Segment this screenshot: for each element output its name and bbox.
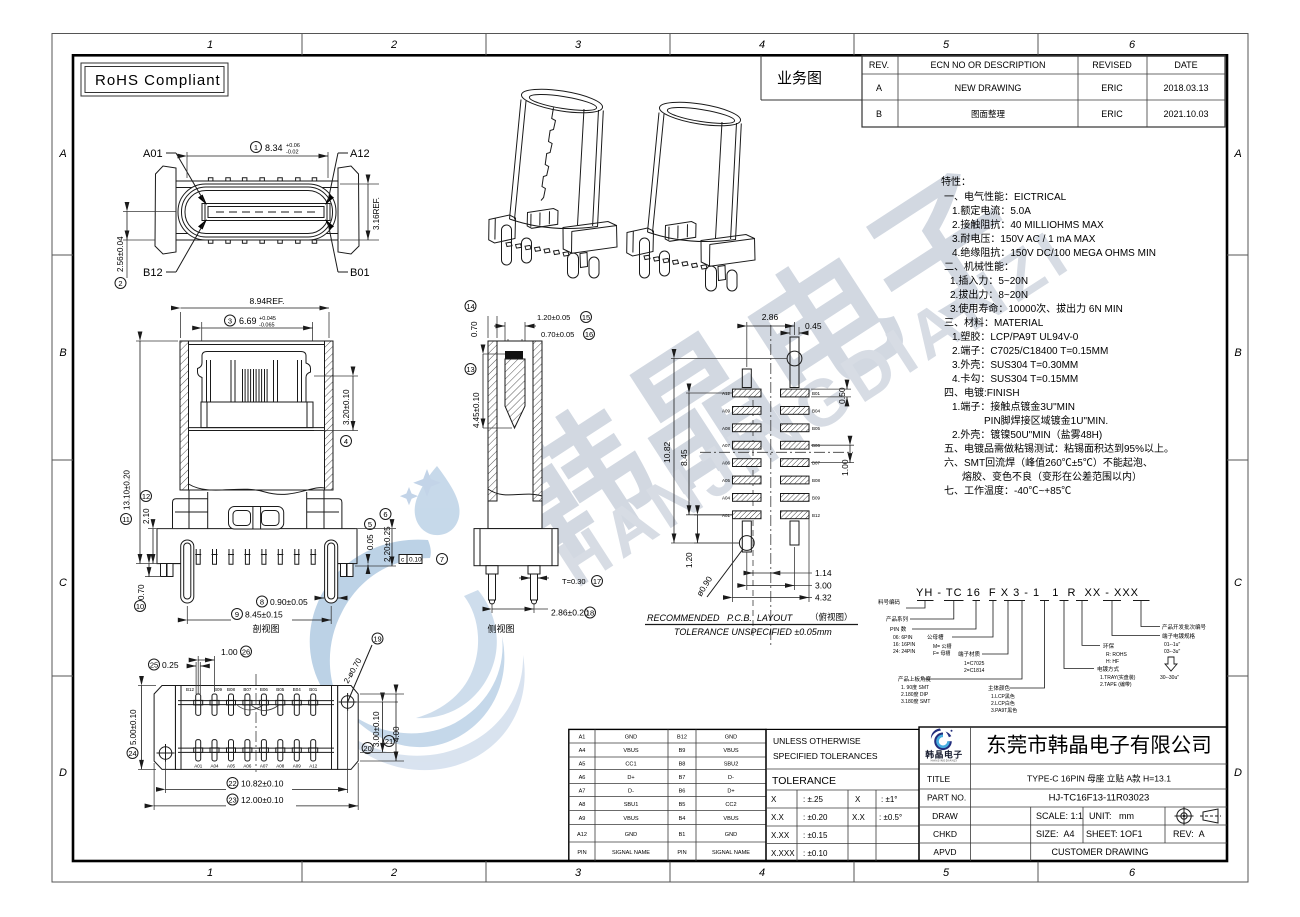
svg-text:X: X <box>855 795 861 804</box>
svg-text:6: 6 <box>383 510 387 519</box>
svg-text:2.56±0.04: 2.56±0.04 <box>116 236 125 272</box>
svg-text:20: 20 <box>363 744 371 753</box>
svg-text:A: A <box>876 83 882 93</box>
svg-text:18: 18 <box>586 609 594 618</box>
svg-text:12: 12 <box>142 492 150 501</box>
svg-text:2: 2 <box>118 279 122 288</box>
svg-text:1=C7025: 1=C7025 <box>964 661 985 667</box>
svg-text:电镀方式: 电镀方式 <box>1097 665 1120 673</box>
svg-text:B4: B4 <box>679 816 686 822</box>
svg-text:24: 24PIN: 24: 24PIN <box>893 649 916 655</box>
svg-text:4.32: 4.32 <box>815 593 832 603</box>
svg-text:4.卡勾：SUS304 T=0.15MM: 4.卡勾：SUS304 T=0.15MM <box>952 372 1078 385</box>
svg-text:A08: A08 <box>722 426 731 431</box>
svg-text:H: HF: H: HF <box>1106 659 1119 665</box>
svg-text:X.X: X.X <box>852 813 866 822</box>
svg-text:B05: B05 <box>812 426 821 431</box>
svg-text:2.TAPE (编带): 2.TAPE (编带) <box>1100 681 1132 688</box>
svg-text:CC2: CC2 <box>725 802 736 808</box>
svg-text:0.10: 0.10 <box>409 557 422 564</box>
svg-text:2.外壳：镀镍50U"MIN（盐雾48H): 2.外壳：镀镍50U"MIN（盐雾48H) <box>952 428 1102 441</box>
svg-text:A9: A9 <box>579 816 586 822</box>
svg-text:GND: GND <box>725 735 737 741</box>
svg-text:2018.03.13: 2018.03.13 <box>1163 83 1208 93</box>
svg-text:2.端子：C7025/C18400 T=0.15MM: 2.端子：C7025/C18400 T=0.15MM <box>952 344 1108 357</box>
svg-text:B1: B1 <box>679 832 686 838</box>
svg-text:四、电镀:FINISH: 四、电镀:FINISH <box>944 386 1020 399</box>
svg-text:0.45: 0.45 <box>805 321 822 331</box>
svg-text:SPECIFIED TOLERANCES: SPECIFIED TOLERANCES <box>773 751 878 761</box>
svg-text:SIZE: A4: SIZE: A4 <box>1036 829 1075 839</box>
svg-text:B: B <box>59 347 66 359</box>
svg-text:17: 17 <box>593 577 601 586</box>
svg-text:CC1: CC1 <box>625 762 636 768</box>
svg-text:3.外壳：SUS304 T=0.30MM: 3.外壳：SUS304 T=0.30MM <box>952 358 1078 371</box>
svg-text:: ±0.5°: : ±0.5° <box>879 813 902 822</box>
svg-text:0.70: 0.70 <box>470 321 479 337</box>
svg-text:B8: B8 <box>679 762 686 768</box>
svg-text:4: 4 <box>759 867 765 879</box>
svg-text:C: C <box>59 577 67 589</box>
svg-text:3: 3 <box>575 39 582 51</box>
svg-text:: ±.25: : ±.25 <box>803 795 824 804</box>
svg-text:B08: B08 <box>812 478 821 483</box>
svg-text:SHEET: 1OF1: SHEET: 1OF1 <box>1086 829 1143 839</box>
svg-text:A04: A04 <box>210 764 219 769</box>
svg-text:VBUS: VBUS <box>623 816 639 822</box>
svg-text:A6: A6 <box>579 775 586 781</box>
svg-text:2=C1814: 2=C1814 <box>964 668 985 674</box>
svg-text:公母槽: 公母槽 <box>927 633 944 641</box>
svg-text:PIN 数: PIN 数 <box>890 625 907 633</box>
svg-text:GND: GND <box>625 832 637 838</box>
svg-text:D+: D+ <box>627 775 634 781</box>
svg-text:B01: B01 <box>812 391 821 396</box>
svg-text:（俯视图）: （俯视图） <box>810 612 853 622</box>
svg-text:1: 1 <box>207 867 213 879</box>
svg-text:A12: A12 <box>722 391 731 396</box>
svg-text:01--1u": 01--1u" <box>1164 642 1180 648</box>
svg-text:5: 5 <box>368 520 372 529</box>
svg-text:A09: A09 <box>722 408 731 413</box>
svg-text:产品上板角度: 产品上板角度 <box>898 675 932 683</box>
svg-text:一、电气性能：EICTRICAL: 一、电气性能：EICTRICAL <box>944 190 1067 203</box>
svg-text:4.00: 4.00 <box>392 726 401 742</box>
svg-text:10.82±0.10: 10.82±0.10 <box>241 779 284 789</box>
svg-text:A: A <box>1233 148 1241 160</box>
svg-text:4.45±0.10: 4.45±0.10 <box>472 392 481 428</box>
svg-text:5: 5 <box>943 39 950 51</box>
svg-text:VBUS: VBUS <box>723 748 739 754</box>
svg-text:B04: B04 <box>293 687 302 692</box>
svg-text:A01: A01 <box>722 513 731 518</box>
svg-text:3: 3 <box>575 867 582 879</box>
svg-text:M= 公槽: M= 公槽 <box>933 643 951 650</box>
svg-text:2021.10.03: 2021.10.03 <box>1163 109 1208 119</box>
svg-text:A: A <box>58 148 66 160</box>
svg-text:B: B <box>1234 347 1241 359</box>
svg-text:B5: B5 <box>679 802 686 808</box>
svg-text:剖视图: 剖视图 <box>252 623 279 634</box>
svg-text:HANJINGDIANZI: HANJINGDIANZI <box>931 759 958 763</box>
svg-text:19: 19 <box>373 635 381 644</box>
svg-text:A04: A04 <box>722 495 731 500</box>
svg-text:七、工作温度：-40℃~+85℃: 七、工作温度：-40℃~+85℃ <box>944 484 1071 497</box>
svg-text:10.82: 10.82 <box>662 441 672 463</box>
svg-text:产品开发批次编号: 产品开发批次编号 <box>1162 623 1207 631</box>
svg-text:UNIT: mm: UNIT: mm <box>1089 811 1134 821</box>
svg-text:C: C <box>1234 577 1242 589</box>
svg-text:16: 16 <box>585 330 593 339</box>
svg-text:ECN NO OR DESCRIPTION: ECN NO OR DESCRIPTION <box>930 60 1045 70</box>
svg-text:2.10: 2.10 <box>142 508 151 524</box>
svg-text:5: 5 <box>943 867 950 879</box>
svg-text:0.70: 0.70 <box>137 584 146 600</box>
svg-text:8: 8 <box>260 598 264 607</box>
svg-text:B09: B09 <box>214 687 223 692</box>
svg-text:东莞市韩晶电子有限公司: 东莞市韩晶电子有限公司 <box>986 734 1212 757</box>
svg-text:25: 25 <box>150 661 158 670</box>
svg-text:3.00±0.10: 3.00±0.10 <box>372 711 381 747</box>
svg-text:A12: A12 <box>309 764 318 769</box>
svg-text:B06: B06 <box>260 687 269 692</box>
svg-text:业务图: 业务图 <box>777 70 822 87</box>
svg-text:SIGNAL NAME: SIGNAL NAME <box>712 850 750 856</box>
svg-text:15: 15 <box>582 313 590 322</box>
svg-text:2: 2 <box>390 39 397 51</box>
svg-text:HJ-TC16F13-11R03023: HJ-TC16F13-11R03023 <box>1049 793 1150 804</box>
svg-text:6: 6 <box>1129 867 1136 879</box>
svg-text:REVISED: REVISED <box>1092 60 1132 70</box>
svg-text:A07: A07 <box>260 764 269 769</box>
svg-text:B05: B05 <box>276 687 285 692</box>
svg-text:六、SMT回流焊（峰值260℃±5℃）不能起泡、: 六、SMT回流焊（峰值260℃±5℃）不能起泡、 <box>944 456 1153 469</box>
svg-text:23: 23 <box>228 796 236 805</box>
svg-text:-0.02: -0.02 <box>286 150 299 156</box>
svg-text:: ±1°: : ±1° <box>881 795 897 804</box>
svg-text:端子材质: 端子材质 <box>958 650 981 658</box>
svg-text:B6: B6 <box>679 789 686 795</box>
svg-text:22: 22 <box>228 779 236 788</box>
svg-text:B01: B01 <box>309 687 318 692</box>
svg-text:SBU2: SBU2 <box>724 762 739 768</box>
svg-text:2.LCP白色: 2.LCP白色 <box>991 700 1015 707</box>
svg-text:B07: B07 <box>812 461 821 466</box>
svg-text:B12: B12 <box>812 513 821 518</box>
svg-text:16: 16PIN: 16: 16PIN <box>893 642 916 648</box>
svg-text:端子电镀规格: 端子电镀规格 <box>1162 632 1196 640</box>
svg-text:RECOMMENDED P.C.B. LAYOUT: RECOMMENDED P.C.B. LAYOUT <box>647 613 794 623</box>
svg-text:A5: A5 <box>579 762 586 768</box>
svg-text:B06: B06 <box>812 443 821 448</box>
svg-text:PART NO.: PART NO. <box>927 793 966 803</box>
svg-text:2: 2 <box>390 867 397 879</box>
svg-text:0.05: 0.05 <box>366 534 375 550</box>
svg-text:D-: D- <box>628 789 634 795</box>
svg-text:F= 母槽: F= 母槽 <box>933 650 950 657</box>
svg-text:1: 1 <box>254 143 258 152</box>
svg-text:SCALE: 1:1: SCALE: 1:1 <box>1036 811 1083 821</box>
svg-text:B12: B12 <box>143 267 163 279</box>
svg-text:A08: A08 <box>276 764 285 769</box>
svg-text:11: 11 <box>122 515 130 524</box>
svg-text:8.94REF.: 8.94REF. <box>250 296 285 306</box>
svg-text:A1: A1 <box>579 735 586 741</box>
svg-text:2.86±0.20: 2.86±0.20 <box>551 608 589 618</box>
svg-text:B9: B9 <box>679 748 686 754</box>
svg-text:A12: A12 <box>350 148 370 160</box>
svg-text:二、机械性能：: 二、机械性能： <box>944 260 1014 273</box>
svg-text:1.插入力：5~20N: 1.插入力：5~20N <box>950 274 1028 287</box>
svg-text:1.20: 1.20 <box>685 552 694 568</box>
svg-text:B01: B01 <box>350 267 370 279</box>
svg-text:4: 4 <box>759 39 765 51</box>
svg-text:产品系列: 产品系列 <box>886 615 909 623</box>
svg-text:TYPE-C 16PIN 母座 立贴 A款 H=13.1: TYPE-C 16PIN 母座 立贴 A款 H=13.1 <box>1027 773 1171 784</box>
svg-text:REV: A: REV: A <box>1173 829 1205 839</box>
svg-text:3.16REF.: 3.16REF. <box>372 197 381 230</box>
svg-text:+0.06: +0.06 <box>286 143 300 149</box>
svg-text:1: 1 <box>207 39 213 51</box>
svg-text:X.XXX: X.XXX <box>771 849 795 858</box>
svg-text:VBUS: VBUS <box>723 816 739 822</box>
svg-text:B: B <box>876 109 882 119</box>
svg-text:0.25: 0.25 <box>162 660 179 670</box>
svg-text:环保: 环保 <box>1103 642 1115 650</box>
svg-text:0.50: 0.50 <box>837 387 847 404</box>
svg-text:13: 13 <box>466 365 474 374</box>
svg-text:2.86: 2.86 <box>762 312 779 322</box>
svg-text:GND: GND <box>725 832 737 838</box>
svg-text:SBU1: SBU1 <box>624 802 639 808</box>
svg-text:T=0.30: T=0.30 <box>562 577 586 586</box>
svg-text:B12: B12 <box>186 687 195 692</box>
svg-text:SIGNAL NAME: SIGNAL NAME <box>612 850 650 856</box>
svg-text:GND: GND <box>625 735 637 741</box>
svg-text:1.端子：接触点镀金3U"MIN: 1.端子：接触点镀金3U"MIN <box>952 400 1075 413</box>
svg-text:8.45: 8.45 <box>679 449 689 466</box>
svg-text:3.PA9T黑色: 3.PA9T黑色 <box>991 707 1017 714</box>
svg-text:NEW DRAWING: NEW DRAWING <box>955 83 1022 93</box>
svg-text:: ±0.20: : ±0.20 <box>803 813 828 822</box>
svg-text:TOLERANCE UNSPECIFIED ±0.05mm: TOLERANCE UNSPECIFIED ±0.05mm <box>674 627 832 637</box>
svg-text:YH - TC 16 F X 3 - 1 1 R: YH - TC 16 F X 3 - 1 1 R XX - XXX <box>916 587 1139 599</box>
svg-text:三、材料：MATERIAL: 三、材料：MATERIAL <box>944 316 1044 329</box>
svg-text:10: 10 <box>136 602 144 611</box>
svg-text:D+: D+ <box>727 789 734 795</box>
svg-text:30--30u": 30--30u" <box>1160 675 1179 681</box>
svg-text:+0.045: +0.045 <box>259 316 276 322</box>
svg-text:3.耐电压：150V AC / 1 mA MAX: 3.耐电压：150V AC / 1 mA MAX <box>952 232 1096 245</box>
svg-text:3: 3 <box>228 317 232 326</box>
svg-text:13.10±0.20: 13.10±0.20 <box>123 469 132 510</box>
svg-text:14: 14 <box>466 302 474 311</box>
svg-text:ERIC: ERIC <box>1101 83 1123 93</box>
svg-text:8.34: 8.34 <box>265 143 283 153</box>
svg-text:A05: A05 <box>227 764 236 769</box>
svg-text:6.69: 6.69 <box>239 316 257 326</box>
svg-text:A01: A01 <box>143 148 163 160</box>
svg-text:26: 26 <box>242 648 250 657</box>
svg-text:4.绝缘阻抗：150V DC/100 MEGA OHMS M: 4.绝缘阻抗：150V DC/100 MEGA OHMS MIN <box>952 246 1156 259</box>
svg-text:A12: A12 <box>577 832 587 838</box>
svg-text:五、电镀品需做粘锡测试：粘锡面积达到95%以上。: 五、电镀品需做粘锡测试：粘锡面积达到95%以上。 <box>944 442 1174 455</box>
svg-text:A01: A01 <box>194 764 203 769</box>
svg-text:2.20±0.25: 2.20±0.25 <box>383 526 392 562</box>
svg-text:B08: B08 <box>227 687 236 692</box>
svg-text:: ±0.10: : ±0.10 <box>803 849 828 858</box>
svg-text:图面整理: 图面整理 <box>971 109 1006 119</box>
svg-text:APVD: APVD <box>933 847 956 857</box>
svg-text:D-: D- <box>728 775 734 781</box>
svg-text:料号编码: 料号编码 <box>878 598 901 606</box>
svg-text:3.20±0.10: 3.20±0.10 <box>342 389 351 425</box>
svg-text:R: ROHS: R: ROHS <box>1106 652 1128 658</box>
svg-text:: ±0.15: : ±0.15 <box>803 831 828 840</box>
svg-text:侧视图: 侧视图 <box>487 623 514 634</box>
svg-text:03--3u": 03--3u" <box>1164 649 1180 655</box>
svg-text:12.00±0.10: 12.00±0.10 <box>241 795 284 805</box>
svg-text:X.X: X.X <box>771 813 785 822</box>
svg-text:B7: B7 <box>679 775 686 781</box>
svg-text:9: 9 <box>235 610 239 619</box>
svg-text:2.接触阻抗：40 MILLIOHMS MAX: 2.接触阻抗：40 MILLIOHMS MAX <box>952 218 1104 231</box>
svg-text:24: 24 <box>128 749 136 758</box>
svg-text:0.90±0.05: 0.90±0.05 <box>270 597 308 607</box>
svg-text:RoHS Compliant: RoHS Compliant <box>95 72 221 89</box>
svg-text:3.180度 SMT: 3.180度 SMT <box>901 698 930 705</box>
svg-text:VBUS: VBUS <box>623 748 639 754</box>
svg-text:3.00: 3.00 <box>815 581 832 591</box>
svg-text:4: 4 <box>344 437 348 446</box>
svg-text:TITLE: TITLE <box>927 774 950 784</box>
svg-text:熔胶、变色不良（变形在公差范围以内）: 熔胶、变色不良（变形在公差范围以内） <box>962 470 1142 483</box>
svg-text:1.塑胶：LCP/PA9T UL94V-0: 1.塑胶：LCP/PA9T UL94V-0 <box>952 330 1079 343</box>
svg-text:A06: A06 <box>722 461 731 466</box>
svg-text:UNLESS OTHERWISE: UNLESS OTHERWISE <box>773 736 861 746</box>
svg-text:PIN脚焊接区域镀金1U"MIN.: PIN脚焊接区域镀金1U"MIN. <box>984 414 1108 427</box>
svg-text:X: X <box>771 795 777 804</box>
svg-text:DATE: DATE <box>1174 60 1197 70</box>
svg-text:0.70±0.05: 0.70±0.05 <box>541 330 574 339</box>
svg-text:1.20±0.05: 1.20±0.05 <box>537 313 570 322</box>
svg-text:CUSTOMER DRAWING: CUSTOMER DRAWING <box>1051 847 1148 857</box>
svg-text:A07: A07 <box>722 443 731 448</box>
svg-text:X.XX: X.XX <box>771 831 790 840</box>
svg-text:A05: A05 <box>722 478 731 483</box>
svg-text:5.00±0.10: 5.00±0.10 <box>129 709 138 745</box>
svg-text:PIN: PIN <box>677 850 686 856</box>
svg-text:B07: B07 <box>243 687 252 692</box>
svg-text:06: 6PIN: 06: 6PIN <box>893 635 913 641</box>
svg-text:主体颜色: 主体颜色 <box>988 684 1011 692</box>
svg-text:D: D <box>1234 767 1242 779</box>
svg-text:A06: A06 <box>243 764 252 769</box>
svg-text:1.00: 1.00 <box>840 459 850 476</box>
svg-text:PIN: PIN <box>577 850 586 856</box>
svg-text:2.拔出力：8~20N: 2.拔出力：8~20N <box>950 288 1028 301</box>
svg-text:1.额定电流：5.0A: 1.额定电流：5.0A <box>952 204 1031 217</box>
svg-text:A09: A09 <box>293 764 302 769</box>
svg-text:1.14: 1.14 <box>815 568 832 578</box>
svg-text:DRAW: DRAW <box>932 811 958 821</box>
svg-text:6: 6 <box>1129 39 1136 51</box>
svg-text:A4: A4 <box>579 748 586 754</box>
svg-text:D: D <box>59 767 67 779</box>
svg-text:1.00: 1.00 <box>221 647 238 657</box>
svg-text:1.LCP黑色: 1.LCP黑色 <box>991 693 1015 700</box>
svg-text:B12: B12 <box>677 735 687 741</box>
svg-text:TOLERANCE: TOLERANCE <box>772 775 836 787</box>
svg-text:特性：: 特性： <box>941 175 971 188</box>
svg-text:A7: A7 <box>579 789 586 795</box>
svg-text:3.使用寿命：10000次、拔出力 6N MIN: 3.使用寿命：10000次、拔出力 6N MIN <box>950 302 1123 315</box>
svg-text:REV.: REV. <box>869 60 889 70</box>
svg-text:ERIC: ERIC <box>1101 109 1123 119</box>
svg-text:2.180度 DIP: 2.180度 DIP <box>901 691 929 698</box>
svg-text:B09: B09 <box>812 495 821 500</box>
svg-text:CHKD: CHKD <box>933 829 957 839</box>
svg-text:A8: A8 <box>579 802 586 808</box>
svg-text:B04: B04 <box>812 408 821 413</box>
svg-text:8.45±0.15: 8.45±0.15 <box>245 610 283 620</box>
svg-text:1. 90度 SMT: 1. 90度 SMT <box>901 684 929 691</box>
svg-text:1.TRAY(实盘装): 1.TRAY(实盘装) <box>1100 674 1136 681</box>
svg-text:7: 7 <box>440 555 444 564</box>
